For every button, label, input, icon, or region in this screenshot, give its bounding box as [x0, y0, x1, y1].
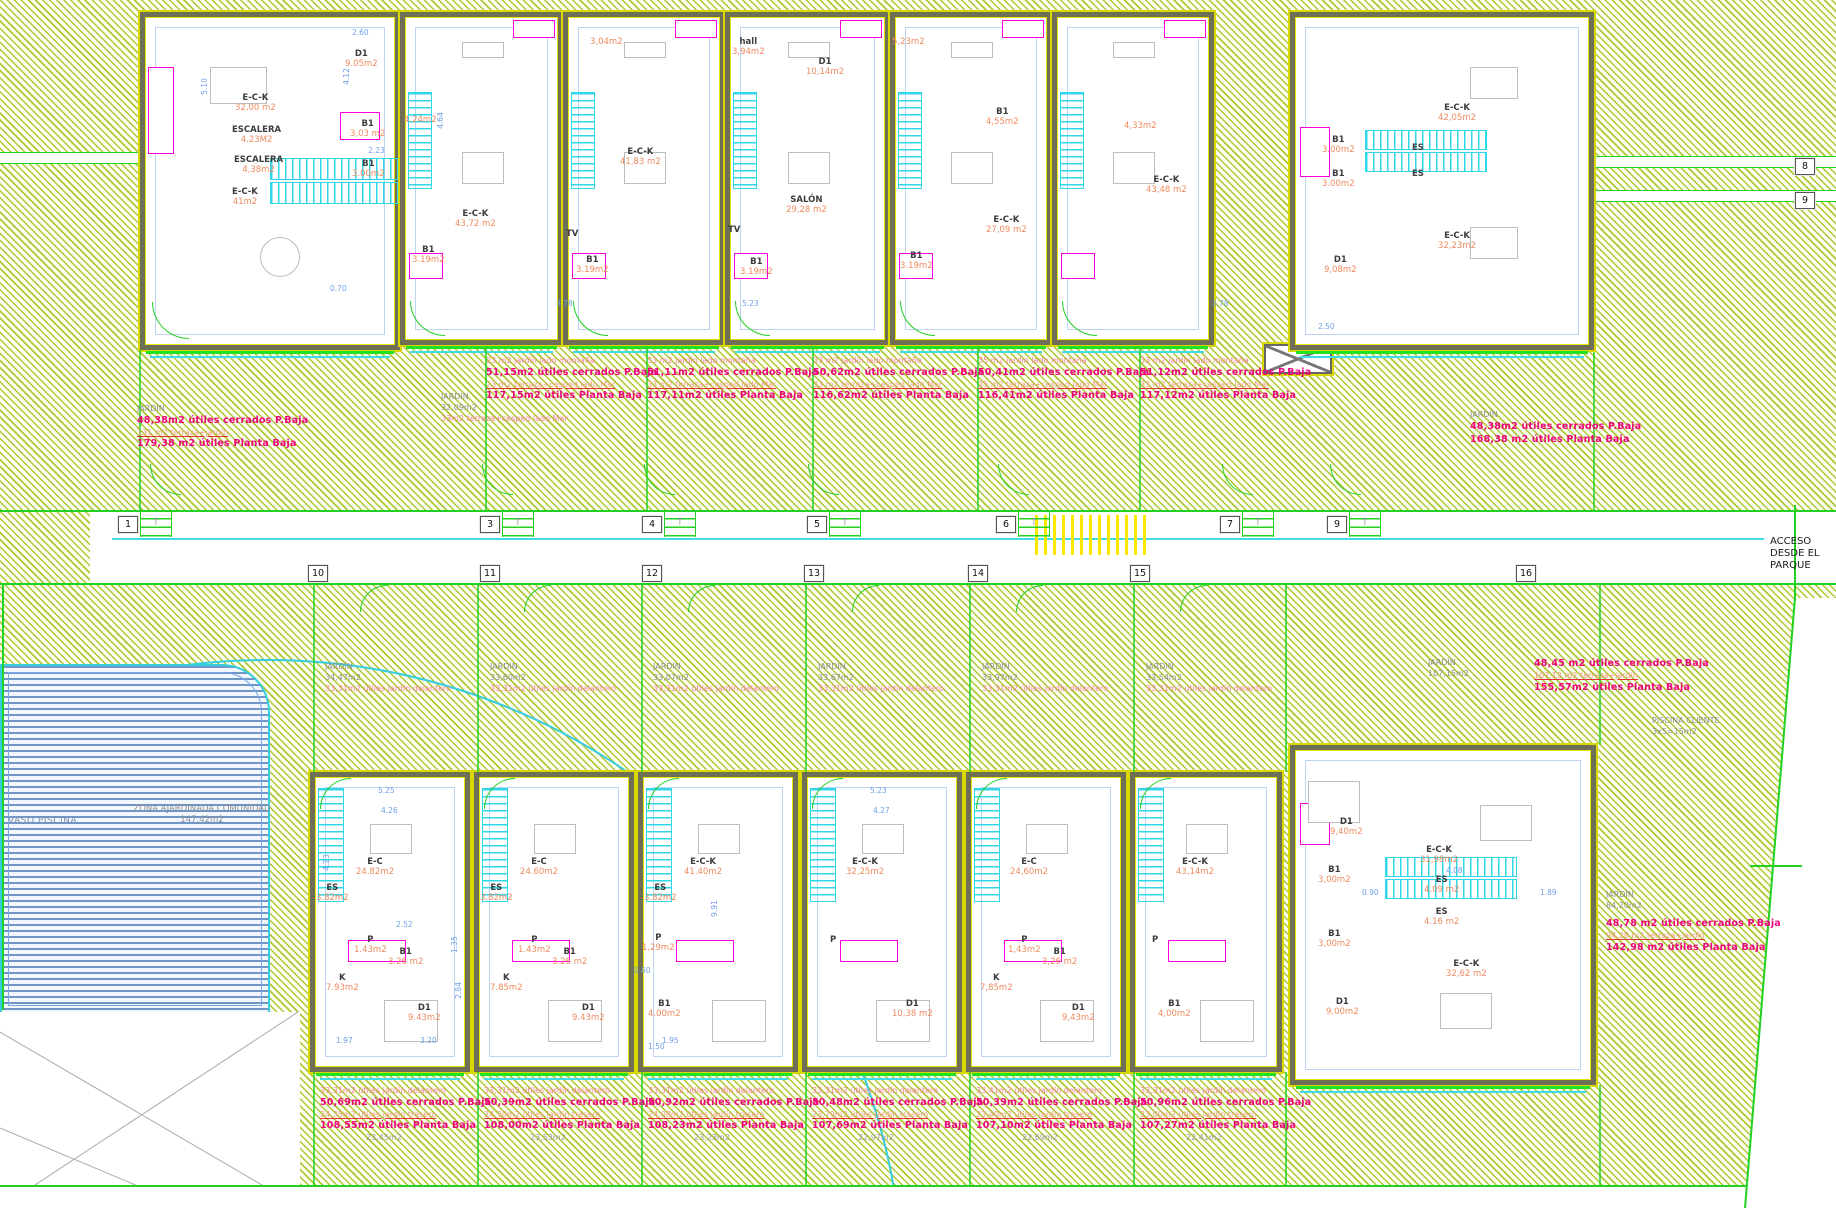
room-label: 3,04m2: [590, 38, 623, 48]
terrace-edge: [406, 346, 557, 349]
kitchen-counter: [1002, 20, 1044, 38]
dimension-label: 2.23: [368, 146, 385, 155]
room-area-value: 3.19m2: [740, 268, 773, 278]
bed: [712, 1000, 766, 1042]
area-text-line: 84,20m2: [1606, 901, 1642, 912]
dimension-label: 4.12: [342, 68, 351, 85]
room-area-value: 29,28 m2: [786, 206, 827, 216]
bathroom-fixture: [1168, 940, 1226, 962]
grid-marker: 12: [642, 565, 662, 582]
room-area-value: 4,55m2: [986, 118, 1019, 128]
sofa: [462, 42, 504, 58]
acceso-desde-el-parque-label: ACCESO DESDE EL PARQUE: [1770, 536, 1819, 573]
area-text-line: 33,31m2 útiles jardín delantero: [648, 1086, 819, 1097]
dining-table: [1186, 824, 1228, 854]
bed: [1200, 1000, 1254, 1042]
staircase-hatch: [1365, 130, 1487, 150]
room-label: P: [830, 936, 836, 946]
staircase-hatch: [1365, 152, 1487, 172]
dining-table: [462, 152, 504, 184]
room-area-value: 3.82m2: [480, 894, 513, 904]
room-label: D110,38 m2: [892, 1000, 933, 1020]
dining-table: [951, 152, 993, 184]
room-label: 5,23m2: [892, 38, 925, 48]
dimension-label: 2.50: [1318, 322, 1335, 331]
terrace-line: [150, 356, 390, 358]
room-label: B14,55m2: [986, 108, 1019, 128]
dimension-label: 2.84: [454, 982, 463, 999]
area-text-line: 33 m2 jardín lado montaña: [647, 356, 818, 367]
area-text-line: 50,39m2 útiles cerrados P.Baja: [976, 1097, 1147, 1110]
room-area-value: 4.16 m2: [1424, 918, 1459, 928]
area-text-block: 33,31m2 útiles jardín delantero50,48m2 ú…: [812, 1086, 983, 1144]
area-text-block: JARDÍN33,07m233,31m2 útiles jardín delan…: [653, 662, 779, 694]
room-label: TV: [566, 230, 578, 240]
room-label: ESCALERA4,38m2: [234, 156, 283, 176]
room-label: B13,00m2: [1318, 930, 1351, 950]
room-label: B13.26 m2: [552, 948, 587, 968]
room-label: E-C-K41,83 m2: [620, 148, 661, 168]
zona-line-2: 147,42m2: [118, 815, 286, 826]
dimension-label: 0.60: [634, 966, 651, 975]
room-area-value: 9.43m2: [572, 1014, 605, 1024]
room-label: B13.00m2: [1322, 170, 1355, 190]
room-label: D110,14m2: [806, 58, 844, 78]
area-text-line: 33,31m2 útiles jardín delantero: [653, 684, 779, 695]
area-text-line: 51,12m2 útiles cerrados P.Baja: [1140, 367, 1311, 380]
round-table: [260, 237, 300, 277]
area-text-line: JARDÍN: [818, 662, 944, 673]
dimension-label: 5.23: [742, 299, 759, 308]
area-text-line: 33,60m2: [490, 673, 616, 684]
room-label: D19,43m2: [1062, 1004, 1095, 1024]
room-label: ES3.82m2: [316, 884, 349, 904]
grid-marker: 7: [1220, 516, 1240, 533]
kitchen-counter: [840, 20, 882, 38]
room-area-value: 1,29m2: [642, 944, 675, 954]
dining-table: [1470, 67, 1518, 99]
acceso-line-1: ACCESO: [1770, 536, 1819, 548]
area-text-line: 23 m2 terraza+cesped lado Mar: [486, 380, 657, 391]
garden-hatch-mid-left: [0, 512, 90, 583]
room-area-value: 24,60m2: [1010, 868, 1048, 878]
room-area-value: 7,85m2: [980, 984, 1013, 994]
area-text-line: 50,48m2 útiles cerrados P.Baja: [812, 1097, 983, 1110]
room-name: TV: [728, 226, 740, 236]
dimension-label: 2.60: [352, 28, 369, 37]
area-text-line: 48,45 m2 útiles cerrados P.Baja: [1534, 658, 1709, 671]
area-text-line: 108,00m2 útiles Planta Baja: [484, 1120, 655, 1133]
area-text-line: 50,62m2 útiles cerrados P.Baja: [813, 367, 984, 380]
acceso-line-2: DESDE EL: [1770, 548, 1819, 560]
room-label: B13.19m2: [412, 246, 445, 266]
room-label: ES3.82m2: [480, 884, 513, 904]
terrace-line: [320, 1078, 460, 1080]
terrace-edge: [569, 346, 719, 349]
room-area-value: 32,00 m2: [235, 104, 276, 114]
room-label: B13.19m2: [900, 252, 933, 272]
area-text-line: JARDÍN: [1470, 410, 1641, 421]
terrace-edge: [1136, 1073, 1276, 1076]
area-text-line: 33,07m2: [653, 673, 779, 684]
terrace-edge: [1296, 1086, 1590, 1089]
room-name: TV: [566, 230, 578, 240]
room-area-value: 7.93m2: [326, 984, 359, 994]
room-area-value: 3,26 m2: [1042, 958, 1077, 968]
room-label: B14.00m2: [648, 1000, 681, 1020]
area-text-line: 107,12 m2 terraza+jardín: [1534, 671, 1709, 682]
dimension-label: 4.08: [1446, 866, 1463, 875]
room-label: E-C-K31,98m2: [1420, 846, 1458, 866]
room-area-value: 3.26 m2: [552, 958, 587, 968]
area-text-line: 33,31m2 útiles jardín delantero: [484, 1086, 655, 1097]
area-text-line: 142,98 m2 útiles Planta Baja: [1606, 942, 1781, 955]
area-text-block: JARDÍN84,20m2: [1606, 890, 1642, 912]
sofa: [951, 42, 993, 58]
room-area-value: 32,62 m2: [1446, 970, 1487, 980]
area-text-line: 23,23m2: [648, 1133, 819, 1144]
terrace-line: [573, 351, 715, 353]
area-text-line: 107,69m2 útiles Planta Baja: [812, 1120, 983, 1133]
room-area-value: 4,33m2: [1124, 122, 1157, 132]
room-label: B13,26 m2: [1042, 948, 1077, 968]
room-label: ES: [1412, 170, 1424, 180]
vaso-piscina-label: VASO PISCINA: [8, 816, 77, 826]
grid-marker: 3: [480, 516, 500, 533]
grid-marker: 15: [1130, 565, 1150, 582]
room-area-value: 24.60m2: [520, 868, 558, 878]
dining-table: [370, 824, 412, 854]
room-area-value: 41,83 m2: [620, 158, 661, 168]
room-area-value: 10,38 m2: [892, 1010, 933, 1020]
dining-table: [862, 824, 904, 854]
area-text-line: 116,62m2 útiles Planta Baja: [813, 390, 984, 403]
room-area-value: 9,40m2: [1330, 828, 1363, 838]
yellow-crossing-hatch: [1035, 515, 1151, 555]
room-label: K7.93m2: [326, 974, 359, 994]
stairs-entry-icon: ↑: [664, 511, 696, 537]
area-text-line: 22,69m2: [976, 1133, 1147, 1144]
grid-marker: 8: [1795, 158, 1815, 175]
room-area-value: 9,08m2: [1324, 266, 1357, 276]
area-text-line: 33,67m2: [818, 673, 944, 684]
area-text-line: 33 m2 jardín lado montaña: [813, 356, 984, 367]
room-label: P1.43m2: [518, 936, 551, 956]
area-text-line: JARDÍN: [982, 662, 1108, 673]
dimension-label: 9.91: [710, 900, 719, 917]
central-walkway: [90, 512, 1836, 583]
area-text-line: 131 m2 terraza+jardín: [137, 428, 308, 439]
room-area-value: 4.24m2: [404, 116, 437, 126]
room-area-value: 43,48 m2: [1146, 186, 1187, 196]
terrace-edge: [808, 1073, 956, 1076]
walkway-guide-line: [112, 538, 1764, 540]
bathroom-fixture: [676, 940, 734, 962]
terrace-line: [976, 1078, 1116, 1080]
area-text-line: 108,55m2 útiles Planta Baja: [320, 1120, 491, 1133]
area-text-line: 23,40m2 útiles jardín trasero: [976, 1110, 1147, 1121]
area-text-line: 51,11m2 útiles cerrados P.Baja: [647, 367, 818, 380]
room-area-value: 24.82m2: [356, 868, 394, 878]
sofa: [624, 42, 666, 58]
room-label: P1,43m2: [1008, 936, 1041, 956]
room-label: E-C24.60m2: [520, 858, 558, 878]
area-text-line: 179,38 m2 útiles Planta Baja: [137, 438, 308, 451]
room-label: P: [1152, 936, 1158, 946]
room-area-value: 4,38m2: [234, 166, 283, 176]
floor-plan-canvas: VASO PISCINA: [0, 0, 1836, 1208]
room-area-value: 3.19m2: [412, 256, 445, 266]
room-name: P: [1152, 936, 1158, 946]
area-text-line: 33,31m2 útiles jardín delantero: [982, 684, 1108, 695]
room-label: B13.00m2: [1322, 136, 1355, 156]
dining-table: [698, 824, 740, 854]
room-label: E-C-K42,05m2: [1438, 104, 1476, 124]
room-label: E-C-K27,09 m2: [986, 216, 1027, 236]
area-text-line: 33,31m2 útiles jardín delantero: [490, 684, 616, 695]
room-label: ES3.82m2: [644, 884, 677, 904]
room-area-value: 4,00m2: [1158, 1010, 1191, 1020]
area-text-line: 116,41m2 útiles Planta Baja: [978, 390, 1149, 403]
room-label: B13,00m2: [1318, 866, 1351, 886]
area-text-line: 22,41m2: [1140, 1133, 1311, 1144]
area-text-line: 108,23m2 útiles Planta Baja: [648, 1120, 819, 1133]
area-text-block: 48,45 m2 útiles cerrados P.Baja107,12 m2…: [1534, 658, 1709, 694]
bathroom-fixture: [840, 940, 898, 962]
terrace-edge: [146, 351, 394, 354]
room-label: B13.19m2: [576, 256, 609, 276]
terrace-line: [1062, 351, 1204, 353]
grid-marker: 9: [1795, 192, 1815, 209]
area-text-block: 33 m2 jardín lado montaña51,11m2 útiles …: [647, 356, 818, 403]
area-text-block: JARDÍN107,15m2: [1428, 658, 1469, 680]
area-text-line: 50,41m2 útiles cerrados P.Baja: [978, 367, 1149, 380]
terrace-edge: [972, 1073, 1120, 1076]
room-area-value: 10,14m2: [806, 68, 844, 78]
area-text-line: 23,00m2 útiles jardín trasero: [1140, 1110, 1311, 1121]
terrace-edge: [644, 1073, 792, 1076]
room-label: B14,00m2: [1158, 1000, 1191, 1020]
area-text-line: 33,31m2 útiles jardín delantero: [320, 1086, 491, 1097]
room-label: E-C-K41.40m2: [684, 858, 722, 878]
area-text-line: 94,28 m2 terraza+jardín: [1606, 931, 1781, 942]
zona-line-1: ZONA AJARDINADA COMUNIDAD: [118, 804, 286, 815]
room-label: P1.43m2: [354, 936, 387, 956]
area-text-line: JARDÍN: [653, 662, 779, 673]
room-area-value: 3.19m2: [900, 262, 933, 272]
terrace-line: [1300, 1091, 1586, 1093]
area-text-line: 24,30m2 útiles jardín trasero: [484, 1110, 655, 1121]
terrace-edge: [1058, 346, 1208, 349]
area-text-block: JARDÍN33,60m233,31m2 útiles jardín delan…: [490, 662, 616, 694]
kitchen-counter: [675, 20, 717, 38]
room-label: B13.00m2: [352, 160, 385, 180]
area-text-block: 33,31m2 útiles jardín delantero50,69m2 ú…: [320, 1086, 491, 1144]
staircase-hatch: [571, 92, 595, 189]
room-label: E-C-K43,72 m2: [455, 210, 496, 230]
grid-marker: 9: [1327, 516, 1347, 533]
stairs-entry-icon: ↑: [829, 511, 861, 537]
sofa: [1113, 42, 1155, 58]
area-text-line: PISCINA CLIENTE: [1652, 716, 1720, 727]
room-area-value: 4.09 m2: [1424, 886, 1459, 896]
room-area-value: 4.00m2: [648, 1010, 681, 1020]
area-text-line: JARDÍN: [490, 662, 616, 673]
room-area-value: 3.82m2: [644, 894, 677, 904]
room-area-value: 43,14m2: [1176, 868, 1214, 878]
area-text-line: 22,97m2: [812, 1133, 983, 1144]
terrace-line: [900, 351, 1042, 353]
room-area-value: 3.26 m2: [388, 958, 423, 968]
area-text-line: 107,15m2: [1428, 669, 1469, 680]
area-text-line: 33,97m2: [982, 673, 1108, 684]
dimension-label: 1.97: [336, 1036, 353, 1045]
terrace-line: [735, 351, 880, 353]
area-text-line: 155,57m2 útiles Planta Baja: [1534, 682, 1709, 695]
room-label: K7,85m2: [980, 974, 1013, 994]
area-text-line: 34,47m2: [325, 673, 451, 684]
room-area-value: 3.19m2: [576, 266, 609, 276]
room-label: TV: [728, 226, 740, 236]
room-area-value: 3.00m2: [352, 170, 385, 180]
area-text-block: JARDÍN32,09m233m2 terraza+cesped lado Ma…: [441, 392, 568, 424]
area-text-line: 48,78 m2 útiles cerrados P.Baja: [1606, 918, 1781, 931]
room-area-value: 43,72 m2: [455, 220, 496, 230]
terrace-line: [1140, 1078, 1272, 1080]
room-area-value: 9.43m2: [408, 1014, 441, 1024]
terrace-edge: [1296, 351, 1588, 354]
dining-table: [1470, 227, 1518, 259]
area-text-line: 23 m2 jardín lado montaña: [486, 356, 657, 367]
area-text-block: 33 m2 jardín lado montaña51,12m2 útiles …: [1140, 356, 1311, 403]
stairs-entry-icon: ↑: [140, 511, 172, 537]
kitchen-counter: [513, 20, 555, 38]
area-text-block: JARDÍN48,38m2 útiles cerrados P.Baja131 …: [137, 404, 308, 451]
dimension-label: 1.50: [648, 1042, 665, 1051]
dimension-label: 5.10: [200, 78, 209, 95]
room-area-value: 42,05m2: [1438, 114, 1476, 124]
grid-marker: 4: [642, 516, 662, 533]
area-text-line: 32,09m2: [441, 403, 568, 414]
boundary-line-left: [0, 152, 140, 164]
staircase-hatch: [408, 92, 432, 189]
room-label: E-C-K32,25m2: [846, 858, 884, 878]
area-text-line: 51,15m2 útiles cerrados P.Baja: [486, 367, 657, 380]
grid-marker: 13: [804, 565, 824, 582]
stairs-entry-icon: ↑: [1242, 511, 1274, 537]
stairs-entry-icon: ↑: [1349, 511, 1381, 537]
room-area-value: 3.00m2: [1322, 180, 1355, 190]
dimension-label: 0.70: [330, 284, 347, 293]
area-text-line: JARDÍN: [1428, 658, 1469, 669]
area-text-line: 33,31m2 útiles jardín delantero: [812, 1086, 983, 1097]
room-label: E-C-K32,23m2: [1438, 232, 1476, 252]
area-text-line: 33 m2 jardín lado montaña: [1140, 356, 1311, 367]
dimension-label: 2.52: [396, 920, 413, 929]
room-area-value: 1.43m2: [518, 946, 551, 956]
room-label: E-C-K43,48 m2: [1146, 176, 1187, 196]
kitchen-counter: [148, 67, 174, 154]
dining-table: [1480, 805, 1532, 841]
area-text-block: 48,78 m2 útiles cerrados P.Baja94,28 m2 …: [1606, 918, 1781, 954]
room-name: ES: [1412, 170, 1424, 180]
area-text-line: JARDÍN: [325, 662, 451, 673]
grid-marker: 6: [996, 516, 1016, 533]
grid-marker: 17: [1806, 858, 1826, 875]
area-text-block: 33,31m2 útiles jardín delantero50,39m2 ú…: [484, 1086, 655, 1144]
area-text-line: 50,92m2 útiles cerrados P.Baja: [648, 1097, 819, 1110]
stairs-entry-icon: ↑: [502, 511, 534, 537]
area-text-line: 117,12m2 útiles Planta Baja: [1140, 390, 1311, 403]
area-text-line: 33,54m2: [1146, 673, 1272, 684]
area-text-block: 35 m2 jardín lado montaña50,41m2 útiles …: [978, 356, 1149, 403]
room-label: SALÓN29,28 m2: [786, 196, 827, 216]
grid-marker: 16: [1516, 565, 1536, 582]
area-text-line: 24,35m2 útiles jardín trasero: [320, 1110, 491, 1121]
area-text-line: 33 m2 terraza+cesped lado Mar: [813, 380, 984, 391]
room-label: B13.19m2: [740, 258, 773, 278]
room-label: hall3,94m2: [732, 38, 765, 58]
room-name: P: [830, 936, 836, 946]
room-area-value: 7.85m2: [490, 984, 523, 994]
area-text-block: JARDÍN33,54m233,31m2 útiles jardín delan…: [1146, 662, 1272, 694]
terrace-edge: [316, 1073, 464, 1076]
room-label: D19,40m2: [1330, 818, 1363, 838]
acceso-line-3: PARQUE: [1770, 560, 1819, 572]
area-text-block: JARDÍN33,97m233,31m2 útiles jardín delan…: [982, 662, 1108, 694]
area-text-line: 33,31m2 útiles jardín delantero: [1140, 1086, 1311, 1097]
staircase-hatch: [733, 92, 757, 189]
sofa: [788, 42, 830, 58]
area-text-line: 50,39m2 útiles cerrados P.Baja: [484, 1097, 655, 1110]
terrace-line: [812, 1078, 952, 1080]
area-text-line: 23,45m2: [320, 1133, 491, 1144]
room-label: E-C-K43,14m2: [1176, 858, 1214, 878]
room-area-value: 1.43m2: [354, 946, 387, 956]
area-text-line: 50,96m2 útiles cerrados P.Baja: [1140, 1097, 1311, 1110]
dining-table: [788, 152, 830, 184]
stairs-entry-icon: ↑: [1018, 511, 1050, 537]
area-text-line: 24,08m2 útiles jardín trasero: [648, 1110, 819, 1121]
dimension-label: 1.89: [1540, 888, 1557, 897]
terrace-edge: [896, 346, 1046, 349]
area-text-line: 50,69m2 útiles cerrados P.Baja: [320, 1097, 491, 1110]
room-area-value: 3,00m2: [1318, 876, 1351, 886]
room-label: D19,00m2: [1326, 998, 1359, 1018]
room-label: D19.05m2: [345, 50, 378, 70]
room-label: B13,03 m2: [350, 120, 385, 140]
room-label: ESCALERA4.23M2: [232, 126, 281, 146]
terrace-line: [1300, 356, 1584, 358]
room-label: ES4.09 m2: [1424, 876, 1459, 896]
area-text-line: 33,31m2 útiles jardín delantero: [818, 684, 944, 695]
room-label: B13.26 m2: [388, 948, 423, 968]
area-text-line: 33,31m2 útiles jardín delantero: [1146, 684, 1272, 695]
dimension-label: 1.35: [450, 936, 459, 953]
room-area-value: 3,04m2: [590, 38, 623, 48]
dimension-label: 0.90: [1362, 888, 1379, 897]
dimension-label: 4.27: [873, 806, 890, 815]
room-label: D19.43m2: [408, 1004, 441, 1024]
dining-table: [534, 824, 576, 854]
dimension-label: 4.26: [381, 806, 398, 815]
room-area-value: 3.82m2: [316, 894, 349, 904]
area-text-line: 168,38 m2 útiles Planta Baja: [1470, 434, 1641, 447]
grid-marker: 14: [968, 565, 988, 582]
area-text-line: 33 m2 terraza+cesped lado Mar: [1140, 380, 1311, 391]
area-text-line: JARDÍN: [137, 404, 308, 415]
area-text-line: JARDÍN: [1606, 890, 1642, 901]
